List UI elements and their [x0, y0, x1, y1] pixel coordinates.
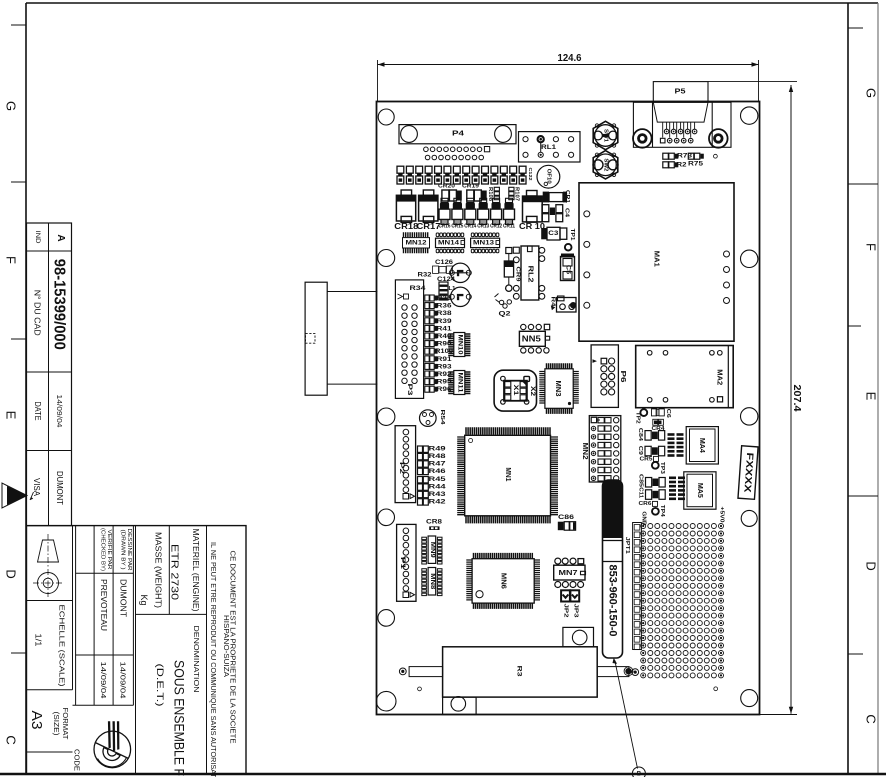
svg-text:CR14: CR14 — [464, 223, 477, 229]
svg-text:(DRAWN BY ): (DRAWN BY ) — [120, 530, 126, 570]
svg-text:IL NE PEUT ETRE REPRODUIT OU C: IL NE PEUT ETRE REPRODUIT OU COMMUNIQUE … — [209, 542, 218, 777]
svg-text:TP1: TP1 — [569, 229, 575, 241]
svg-text:JP3: JP3 — [572, 604, 578, 619]
svg-text:R3: R3 — [516, 666, 523, 678]
svg-text:R45: R45 — [429, 476, 446, 483]
svg-text:853-960-150-0: 853-960-150-0 — [606, 565, 618, 637]
svg-text:MA2: MA2 — [716, 369, 723, 385]
svg-text:R36: R36 — [437, 303, 453, 310]
svg-text:C5: C5 — [565, 265, 571, 275]
svg-text:VERIFIE PAR: VERIFIE PAR — [106, 530, 112, 570]
svg-text:R32: R32 — [418, 272, 433, 279]
svg-text:SW2: SW2 — [603, 158, 609, 171]
svg-text:R108: R108 — [487, 187, 493, 201]
svg-text:ECHELLE (SCALE): ECHELLE (SCALE) — [58, 605, 67, 688]
svg-text:Kg: Kg — [139, 595, 149, 606]
svg-text:14/09/04: 14/09/04 — [55, 395, 64, 428]
svg-text:C6: C6 — [665, 409, 671, 418]
svg-text:98-15399/000: 98-15399/000 — [51, 259, 68, 350]
svg-text:MN14: MN14 — [438, 240, 459, 247]
svg-text:MN13: MN13 — [473, 240, 494, 247]
svg-text:R33: R33 — [437, 295, 453, 302]
svg-text:124.6: 124.6 — [558, 52, 582, 64]
svg-text:MN7: MN7 — [559, 568, 578, 577]
svg-text:CR11: CR11 — [503, 223, 515, 229]
svg-text:P1: P1 — [399, 557, 406, 570]
svg-text:RL1: RL1 — [541, 144, 556, 151]
svg-text:C: C — [864, 714, 879, 723]
svg-text:HISPANO-SUIZA: HISPANO-SUIZA — [222, 615, 231, 677]
svg-text:DENOMINATION: DENOMINATION — [192, 626, 201, 693]
svg-text:FORMAT: FORMAT — [61, 708, 68, 741]
svg-text:D: D — [864, 561, 879, 570]
svg-text:X1: X1 — [512, 385, 518, 397]
svg-text:CR15: CR15 — [451, 223, 463, 229]
svg-text:MA5: MA5 — [696, 483, 703, 498]
svg-text:R93: R93 — [437, 363, 453, 370]
svg-text:MA1: MA1 — [653, 251, 660, 267]
svg-text:C3: C3 — [548, 230, 558, 237]
svg-text:MN6: MN6 — [500, 573, 507, 589]
svg-text:R46: R46 — [429, 468, 446, 475]
svg-text:R38: R38 — [437, 310, 453, 317]
svg-text:CR6: CR6 — [639, 501, 652, 507]
svg-text:F: F — [4, 256, 19, 264]
svg-text:F: F — [864, 243, 879, 251]
svg-text:1/1: 1/1 — [34, 634, 44, 647]
svg-text:RL2: RL2 — [526, 266, 533, 283]
svg-text:MN8: MN8 — [429, 573, 435, 590]
svg-text:CR16: CR16 — [439, 223, 451, 229]
svg-text:(CHECKED BY): (CHECKED BY) — [100, 528, 106, 571]
svg-text:JPT1: JPT1 — [624, 537, 630, 555]
svg-text:TP4: TP4 — [659, 505, 665, 518]
svg-text:MN3: MN3 — [554, 381, 561, 397]
svg-text:DUMONT: DUMONT — [119, 579, 128, 617]
svg-text:C84: C84 — [637, 428, 643, 442]
svg-text:CR17: CR17 — [417, 222, 441, 231]
svg-text:B: B — [637, 772, 642, 777]
svg-text:MN10: MN10 — [456, 335, 462, 356]
svg-text:MN11: MN11 — [456, 373, 462, 394]
svg-text:P6: P6 — [619, 371, 626, 383]
svg-text:X2: X2 — [529, 386, 535, 397]
svg-text:CR9: CR9 — [514, 267, 520, 283]
svg-text:VISA: VISA — [32, 478, 41, 497]
svg-text:C11: C11 — [638, 487, 644, 498]
svg-text:NN5: NN5 — [522, 334, 542, 343]
svg-text:CR13: CR13 — [477, 223, 489, 229]
svg-text:MA4: MA4 — [698, 438, 705, 453]
svg-text:R42: R42 — [429, 498, 446, 505]
svg-text:C126: C126 — [435, 259, 454, 266]
svg-text:ETR 2730: ETR 2730 — [169, 544, 180, 601]
svg-text:Q2: Q2 — [499, 311, 512, 318]
svg-text:N° DU CAD: N° DU CAD — [33, 290, 43, 336]
svg-text:MASSE (WEIGHT): MASSE (WEIGHT) — [154, 532, 164, 608]
svg-text:R2: R2 — [677, 162, 688, 169]
svg-text:C122: C122 — [527, 168, 533, 181]
svg-text:G: G — [864, 88, 879, 98]
svg-text:CODE: CODE — [73, 749, 80, 771]
svg-text:MN2: MN2 — [581, 443, 588, 460]
svg-text:C: C — [4, 735, 19, 744]
svg-text:SOUS ENSEMBLE F: SOUS ENSEMBLE F — [172, 660, 187, 776]
svg-text:14/09/04: 14/09/04 — [119, 662, 128, 699]
svg-text:PREVOTEAU: PREVOTEAU — [99, 579, 108, 631]
svg-text:G: G — [4, 101, 19, 111]
svg-text:R43: R43 — [429, 491, 446, 498]
svg-text:CR8: CR8 — [426, 519, 442, 526]
svg-text:CR5: CR5 — [640, 456, 653, 462]
svg-text:OF10: OF10 — [545, 169, 551, 184]
svg-text:R4: R4 — [549, 297, 555, 308]
svg-text:P3: P3 — [406, 384, 413, 397]
svg-text:CR20: CR20 — [438, 183, 455, 189]
svg-text:L1: L1 — [449, 286, 456, 292]
svg-text:R49: R49 — [429, 446, 446, 453]
svg-text:(SIZE): (SIZE) — [52, 712, 59, 736]
svg-text:207.4: 207.4 — [791, 385, 803, 412]
svg-text:E: E — [4, 411, 19, 420]
svg-text:DESSINE PAR: DESSINE PAR — [126, 529, 132, 571]
svg-text:CR19: CR19 — [462, 183, 479, 189]
svg-text:MN12: MN12 — [406, 239, 427, 246]
svg-text:R75: R75 — [688, 160, 704, 167]
svg-text:DUMONT: DUMONT — [55, 471, 64, 505]
svg-text:JP2: JP2 — [562, 604, 568, 618]
svg-text:TP3: TP3 — [659, 462, 665, 474]
svg-text:R44: R44 — [429, 484, 446, 491]
svg-text:A: A — [55, 234, 66, 241]
svg-text:D: D — [4, 569, 19, 578]
svg-text:R54: R54 — [439, 410, 445, 426]
svg-text:14/09/04: 14/09/04 — [99, 662, 108, 699]
svg-text:DATE: DATE — [33, 402, 42, 421]
svg-text:CR18: CR18 — [394, 222, 419, 231]
svg-text:C9: C9 — [637, 446, 643, 455]
svg-text:C85: C85 — [638, 474, 644, 487]
svg-text:E: E — [864, 392, 879, 401]
svg-text:R47: R47 — [429, 461, 446, 468]
svg-text:TP2: TP2 — [635, 412, 641, 424]
svg-text:IND: IND — [34, 231, 41, 244]
svg-text:CR12: CR12 — [490, 223, 502, 229]
svg-text:R91: R91 — [437, 356, 453, 363]
svg-text:R34: R34 — [410, 285, 426, 292]
svg-text:(D.E.T.): (D.E.T.) — [154, 664, 165, 707]
svg-text:P5: P5 — [675, 89, 686, 96]
svg-text:A3: A3 — [28, 711, 45, 730]
svg-text:R48: R48 — [429, 453, 446, 460]
svg-text:CR1: CR1 — [564, 190, 570, 203]
svg-text:MN1: MN1 — [504, 467, 511, 481]
svg-text:P4: P4 — [452, 131, 464, 138]
svg-text:MATERIEL (ENGINE): MATERIEL (ENGINE) — [191, 529, 201, 612]
svg-text:SW1: SW1 — [603, 129, 609, 142]
svg-text:R39: R39 — [437, 318, 453, 325]
svg-text:C86: C86 — [558, 514, 574, 521]
svg-text:MN9: MN9 — [429, 542, 435, 559]
svg-text:R41: R41 — [437, 325, 453, 332]
svg-text:+5V0: +5V0 — [719, 507, 725, 523]
svg-text:C4: C4 — [564, 208, 570, 218]
